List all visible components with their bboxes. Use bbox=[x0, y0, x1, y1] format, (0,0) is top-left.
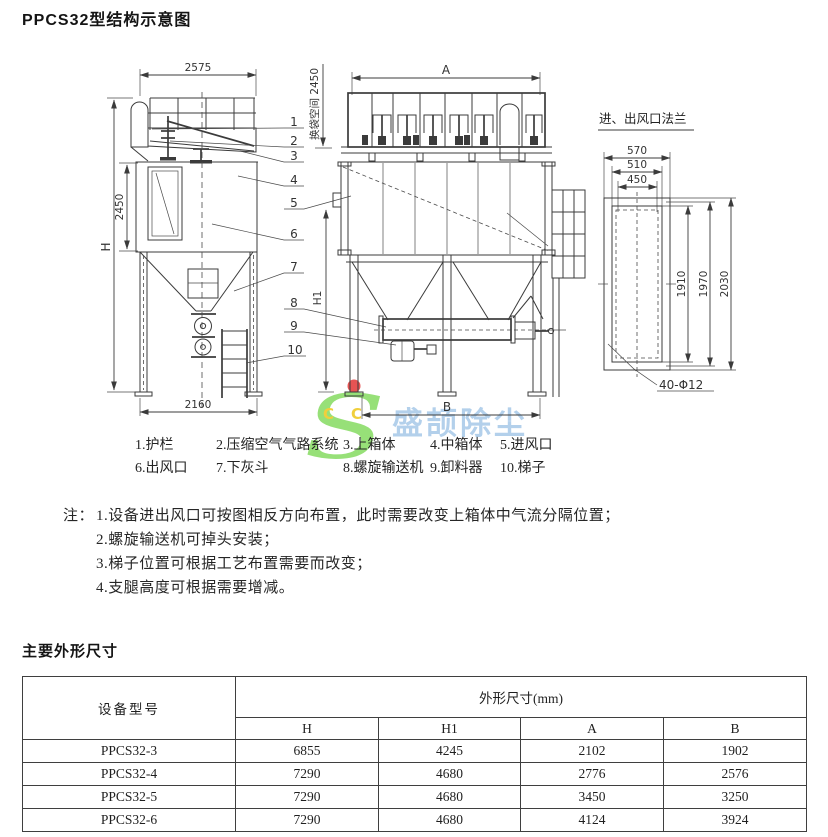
callout-10: 10 bbox=[287, 343, 302, 357]
watermark-dot bbox=[348, 380, 361, 393]
part-item: 8.螺旋输送机 bbox=[343, 457, 430, 480]
col-header-model: 设备型号 bbox=[23, 677, 236, 740]
callout-6: 6 bbox=[290, 227, 298, 241]
part-item: 7.下灰斗 bbox=[216, 457, 343, 480]
callout-2: 2 bbox=[290, 134, 298, 148]
dimensions-table: 设备型号 外形尺寸(mm) H H1 A B PPCS32-3 6855 424… bbox=[22, 676, 807, 832]
part-item: 10.梯子 bbox=[500, 457, 675, 480]
dim-label: 2450 bbox=[114, 194, 126, 221]
table-row: PPCS32-5 7290 4680 3450 3250 bbox=[23, 786, 807, 809]
note-item: 3.梯子位置可根据工艺布置需要而改变； bbox=[96, 552, 620, 576]
dim-label: 换袋空间 2450 bbox=[308, 68, 321, 140]
left-side-view: 2575 bbox=[99, 62, 334, 416]
flange-detail: 进、出风口法兰 570 510 450 bbox=[598, 112, 736, 392]
notes-label: 注： bbox=[63, 504, 96, 600]
dim-label: B bbox=[443, 400, 451, 414]
callout-labels: 1 2 3 4 5 6 7 8 9 10 bbox=[152, 115, 396, 363]
cell-a: 4124 bbox=[521, 809, 664, 832]
cell-h1: 4245 bbox=[379, 740, 521, 763]
notes-block: 注： 1.设备进出风口可按图相反方向布置，此时需要改变上箱体中气流分隔位置； 2… bbox=[63, 504, 620, 600]
cell-h: 7290 bbox=[236, 809, 379, 832]
structure-drawing: S C C 盛颉除尘 2575 bbox=[0, 0, 828, 470]
part-item: 3.上箱体 bbox=[343, 434, 430, 457]
cell-h1: 4680 bbox=[379, 809, 521, 832]
parts-list: 1.护栏 2.压缩空气气路系统 3.上箱体 4.中箱体 5.进风口 6.出风口 … bbox=[135, 434, 675, 480]
dim-label: 2160 bbox=[185, 399, 212, 411]
part-item: 9.卸料器 bbox=[430, 457, 500, 480]
dimensions-title: 主要外形尺寸 bbox=[22, 640, 118, 661]
cell-a: 2102 bbox=[521, 740, 664, 763]
document-page: PPCS32型结构示意图 S C C 盛颉除尘 2575 bbox=[0, 0, 828, 837]
dim-label: 1970 bbox=[698, 271, 710, 298]
col-header-group: 外形尺寸(mm) bbox=[236, 677, 807, 718]
table-row: PPCS32-3 6855 4245 2102 1902 bbox=[23, 740, 807, 763]
dim-label: 1910 bbox=[676, 271, 688, 298]
part-item: 6.出风口 bbox=[135, 457, 216, 480]
cell-b: 2576 bbox=[664, 763, 807, 786]
note-item: 2.螺旋输送机可掉头安装； bbox=[96, 528, 620, 552]
cell-h1: 4680 bbox=[379, 763, 521, 786]
cell-model: PPCS32-5 bbox=[23, 786, 236, 809]
dim-label: 570 bbox=[627, 145, 647, 157]
dim-label: 2575 bbox=[185, 62, 212, 74]
note-item: 4.支腿高度可根据需要增减。 bbox=[96, 576, 620, 600]
flange-detail-title: 进、出风口法兰 bbox=[599, 112, 687, 126]
cell-a: 2776 bbox=[521, 763, 664, 786]
callout-3: 3 bbox=[290, 149, 298, 163]
part-item: 2.压缩空气气路系统 bbox=[216, 434, 343, 457]
watermark-letter: C bbox=[323, 405, 334, 423]
note-item: 1.设备进出风口可按图相反方向布置，此时需要改变上箱体中气流分隔位置； bbox=[96, 504, 620, 528]
col-header-a: A bbox=[521, 718, 664, 740]
cell-model: PPCS32-3 bbox=[23, 740, 236, 763]
callout-1: 1 bbox=[290, 115, 298, 129]
cell-model: PPCS32-4 bbox=[23, 763, 236, 786]
dim-label: 450 bbox=[627, 174, 647, 186]
table-row: PPCS32-6 7290 4680 4124 3924 bbox=[23, 809, 807, 832]
col-header-b: B bbox=[664, 718, 807, 740]
part-item: 5.进风口 bbox=[500, 434, 675, 457]
callout-9: 9 bbox=[290, 319, 298, 333]
cell-model: PPCS32-6 bbox=[23, 809, 236, 832]
cell-h1: 4680 bbox=[379, 786, 521, 809]
cell-h: 7290 bbox=[236, 786, 379, 809]
cell-b: 1902 bbox=[664, 740, 807, 763]
cell-h: 6855 bbox=[236, 740, 379, 763]
watermark-letter: C bbox=[351, 405, 362, 423]
cell-h: 7290 bbox=[236, 763, 379, 786]
table-row: PPCS32-4 7290 4680 2776 2576 bbox=[23, 763, 807, 786]
cell-b: 3250 bbox=[664, 786, 807, 809]
callout-4: 4 bbox=[290, 173, 298, 187]
dim-label: 2030 bbox=[719, 271, 731, 298]
col-header-h: H bbox=[236, 718, 379, 740]
cell-a: 3450 bbox=[521, 786, 664, 809]
dim-label: 510 bbox=[627, 159, 647, 171]
part-item: 4.中箱体 bbox=[430, 434, 500, 457]
cell-b: 3924 bbox=[664, 809, 807, 832]
callout-7: 7 bbox=[290, 260, 298, 274]
dim-label: H bbox=[99, 242, 113, 251]
part-item: 1.护栏 bbox=[135, 434, 216, 457]
front-view: A bbox=[333, 63, 585, 419]
callout-5: 5 bbox=[290, 196, 298, 210]
col-header-h1: H1 bbox=[379, 718, 521, 740]
callout-8: 8 bbox=[290, 296, 298, 310]
dim-label: H1 bbox=[312, 291, 324, 306]
dim-label: A bbox=[442, 63, 451, 77]
bolt-holes-label: 40-Φ12 bbox=[659, 378, 703, 392]
